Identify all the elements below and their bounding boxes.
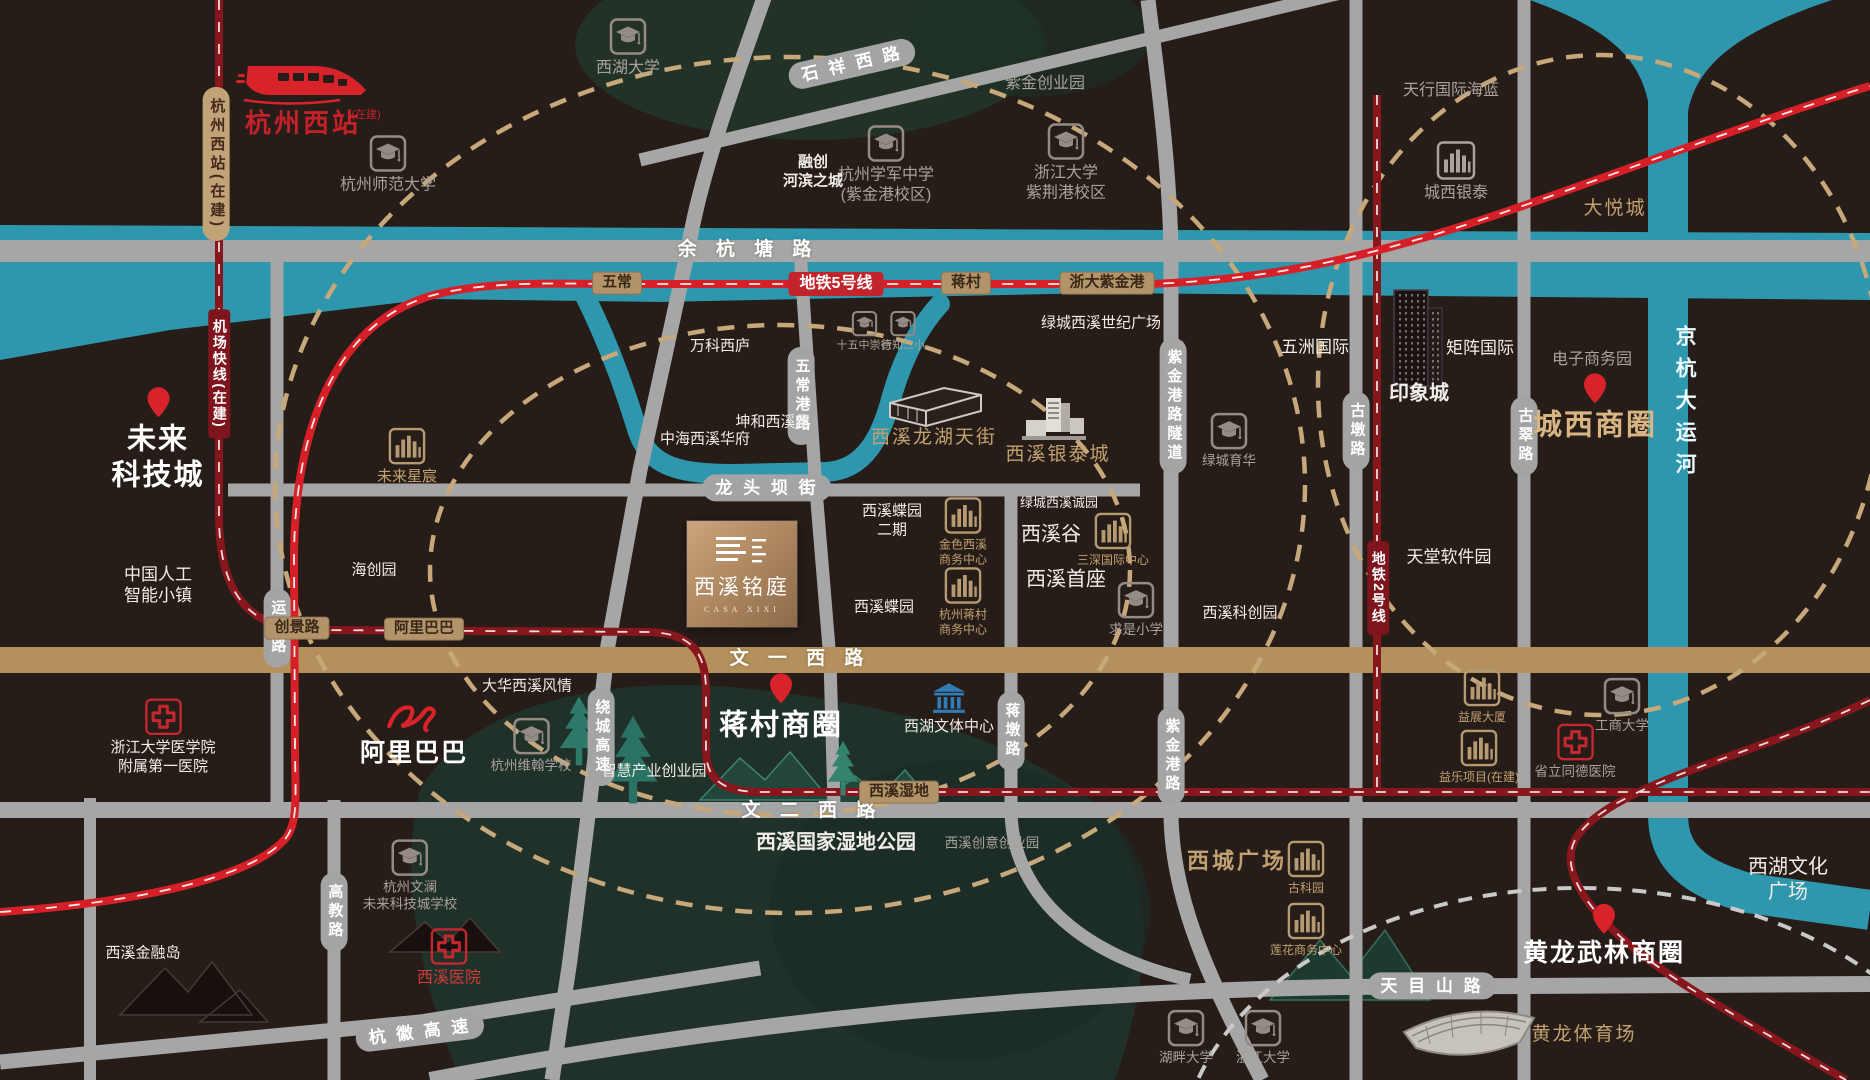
xixi-kechuang-park-label: 西溪科创园 bbox=[1202, 605, 1277, 624]
school-icon bbox=[369, 135, 407, 173]
xixi-shouzuo: 西溪首座 bbox=[1026, 568, 1106, 593]
sanshen-intl-center: 三深国际中心 bbox=[1077, 512, 1149, 568]
xihu-sports-center: 西湖文体中心 bbox=[904, 683, 994, 737]
impression-city-label: 印象城 bbox=[1389, 382, 1449, 407]
wuzhou-intl-label: 五洲国际 bbox=[1281, 336, 1349, 357]
road-yuhangtang: 余 杭 塘 路 bbox=[678, 238, 819, 262]
station-xixi-shidi-label: 西溪湿地 bbox=[859, 781, 939, 804]
xihu-sports-center-label: 西湖文体中心 bbox=[904, 718, 994, 737]
westlake-university-label: 西湖大学 bbox=[596, 59, 660, 79]
road-zijingang: 紫金港路 bbox=[1158, 707, 1185, 805]
road-tianmushan: 天 目 山 路 bbox=[1367, 972, 1496, 999]
lvcheng-xixi-century-plaza-label: 绿城西溪世纪广场 bbox=[1041, 315, 1161, 334]
weihan-school-label: 杭州维翰学校 bbox=[491, 758, 572, 775]
bld-icon bbox=[1463, 669, 1501, 707]
yizhan-tower-label: 益展大厦 bbox=[1458, 710, 1506, 725]
station-alibaba: 阿里巴巴 bbox=[384, 618, 464, 641]
paradise-software-park-label: 天堂软件园 bbox=[1407, 546, 1492, 567]
e-commerce-park-label: 电子商务园 bbox=[1552, 350, 1632, 370]
lvcheng-yuhua-school: 绿城育华 bbox=[1202, 412, 1256, 470]
school-icon bbox=[512, 717, 550, 755]
road-shixiang-xi-label: 石 祥 西 路 bbox=[786, 36, 918, 92]
station-chuangjinglu-label: 创景路 bbox=[264, 617, 329, 640]
xixi-finance-island-label: 西溪金融岛 bbox=[105, 945, 180, 964]
kunhe-xixili-label: 坤和西溪里 bbox=[735, 414, 810, 433]
golden-xixi-biz-center-label: 金色西溪 商务中心 bbox=[939, 538, 987, 568]
xixi-shouzuo-label: 西溪首座 bbox=[1026, 568, 1106, 593]
road-gudun: 古墩路 bbox=[1343, 392, 1370, 471]
hosp-icon bbox=[1556, 723, 1594, 761]
metro-line5-badge-label: 地铁5号线 bbox=[789, 272, 884, 296]
pin-icon bbox=[1592, 903, 1616, 935]
yizhan-tower: 益展大厦 bbox=[1458, 669, 1506, 725]
bld-icon bbox=[388, 427, 426, 465]
westlake-culture-plaza-label: 西湖文化广场 bbox=[1747, 855, 1829, 905]
xicheng-plaza: 西城广场 bbox=[1187, 847, 1287, 875]
future-star-chen: 未来星宸 bbox=[377, 427, 437, 487]
jiangcun-biz-center-label: 杭州蒋村 商务中心 bbox=[939, 608, 987, 638]
xixi-longfor-tianjie: 西溪龙湖天街 bbox=[871, 426, 997, 450]
tianxing-intl-hailan: 天行国际海蓝 bbox=[1403, 81, 1499, 101]
haichuang-park: 海创园 bbox=[351, 562, 396, 581]
road-wenyi-xi-label: 文 一 西 路 bbox=[730, 647, 871, 671]
station-zheda-zijingang: 浙大紫金港 bbox=[1059, 272, 1154, 295]
golden-xixi-biz-center: 金色西溪 商务中心 bbox=[939, 497, 987, 568]
wuzhou-intl: 五洲国际 bbox=[1281, 336, 1349, 357]
project-latin-name: CASA XIXI bbox=[704, 605, 780, 614]
jiangcun-biz-center: 杭州蒋村 商务中心 bbox=[939, 567, 987, 638]
zijin-innovation-park: 紫金创业园 bbox=[1005, 74, 1085, 94]
gongshang-university-label: 工商大学 bbox=[1595, 718, 1649, 735]
hangzhou-west-station-capsule: 杭州西站(在建) bbox=[203, 87, 230, 241]
road-gaojiao-label: 高教路 bbox=[321, 873, 348, 952]
school-icon bbox=[1244, 1009, 1282, 1047]
bld-icon bbox=[1460, 729, 1498, 767]
vanke-xilu-label: 万科西庐 bbox=[690, 338, 750, 357]
xixi-valley-label: 西溪谷 bbox=[1021, 523, 1081, 548]
project-logo-mark bbox=[710, 535, 774, 567]
zhejiang-univ-zijingang-label: 浙江大学 紫荆港校区 bbox=[1026, 164, 1106, 204]
xuejun-high-school-label: 杭州学军中学 (紫金港校区) bbox=[838, 166, 934, 206]
sunac-riverside-city-label: 融创 河滨之城 bbox=[783, 153, 843, 191]
road-zijingang-tunnel: 紫金港路隧道 bbox=[1160, 338, 1187, 474]
juzhen-intl-label: 矩阵国际 bbox=[1446, 337, 1514, 358]
tianxing-intl-hailan-label: 天行国际海蓝 bbox=[1403, 81, 1499, 101]
project-logo: 西溪铭庭 CASA XIXI bbox=[687, 521, 797, 627]
sunac-riverside-city: 融创 河滨之城 bbox=[783, 153, 843, 191]
hosp-icon bbox=[144, 698, 182, 736]
zijin-innovation-park-label: 紫金创业园 bbox=[1005, 74, 1085, 94]
metro-line5-badge: 地铁5号线 bbox=[789, 272, 884, 296]
future-sci-tech-city-label: 未来 科技城 bbox=[111, 421, 204, 494]
future-sci-tech-city: 未来 科技城 bbox=[111, 386, 204, 494]
zhonghai-xixi-huafu-label: 中海西溪华府 bbox=[660, 431, 750, 450]
school-icon bbox=[1117, 581, 1155, 619]
hangzhou-west-station-note: (在建) bbox=[351, 109, 380, 123]
road-shixiang-xi: 石 祥 西 路 bbox=[786, 36, 918, 92]
gongshang-university: 工商大学 bbox=[1595, 677, 1649, 735]
qiushi-primary-label: 求是小学 bbox=[1109, 622, 1163, 639]
bld-icon bbox=[944, 567, 982, 605]
zhejiang-university: 浙江大学 bbox=[1236, 1009, 1290, 1067]
smart-industry-park-label: 智慧产业创业园 bbox=[601, 763, 706, 782]
station-zheda-zijingang-label: 浙大紫金港 bbox=[1059, 272, 1154, 295]
road-gudun-label: 古墩路 bbox=[1343, 392, 1370, 471]
juzhen-intl: 矩阵国际 bbox=[1446, 337, 1514, 358]
qiushi-primary: 求是小学 bbox=[1109, 581, 1163, 639]
metro-line2-badge-label: 地铁2号线 bbox=[1367, 541, 1389, 635]
xicheng-plaza-label: 西城广场 bbox=[1187, 847, 1287, 875]
airport-express-badge: 机场快线(在建) bbox=[208, 309, 230, 438]
hupan-university: 湖畔大学 bbox=[1159, 1009, 1213, 1067]
road-hanghui-expwy: 杭 徽 高 速 bbox=[354, 1011, 486, 1054]
bld-icon bbox=[944, 497, 982, 535]
school-icon bbox=[1210, 412, 1248, 450]
yile-project: 益乐项目(在建) bbox=[1439, 729, 1519, 785]
station-jiangcun: 蒋村 bbox=[941, 272, 991, 295]
joy-city: 大悦城 bbox=[1583, 197, 1646, 221]
station-xixi-shidi: 西溪湿地 bbox=[859, 781, 939, 804]
station-chuangjinglu: 创景路 bbox=[264, 617, 329, 640]
xuejun-high-school: 杭州学军中学 (紫金港校区) bbox=[838, 125, 934, 206]
gukeyuan-label: 古科园 bbox=[1288, 881, 1324, 896]
huanglong-wulin-business-circle-label: 黄龙武林商圈 bbox=[1523, 938, 1685, 969]
road-zijingang-label: 紫金港路 bbox=[1158, 707, 1185, 805]
pin-icon bbox=[1583, 372, 1607, 404]
joy-city-label: 大悦城 bbox=[1583, 197, 1646, 221]
jiangcun-business-circle-label: 蒋村商圈 bbox=[719, 707, 843, 743]
zhonghai-xixi-huafu: 中海西溪华府 bbox=[660, 431, 750, 450]
chengxi-intime-label: 城西银泰 bbox=[1424, 184, 1488, 204]
xingzhi-primary: 行知二小 bbox=[881, 311, 925, 354]
pin-icon bbox=[769, 672, 793, 704]
lvcheng-xixi-chengyuan-label: 绿城西溪诚园 bbox=[1020, 495, 1098, 511]
dahua-xixi-fengqing-label: 大华西溪风情 bbox=[482, 678, 572, 697]
huanglong-stadium-label: 黄龙体育场 bbox=[1531, 1023, 1636, 1047]
jinghang-canal-label: 京杭大运河 bbox=[1671, 325, 1697, 485]
road-yuhangtang-label: 余 杭 塘 路 bbox=[678, 238, 819, 262]
lianhua-biz-center: 莲花商务中心 bbox=[1270, 902, 1342, 958]
road-wenyi-xi: 文 一 西 路 bbox=[730, 647, 871, 671]
zhejiang-univ-zijingang: 浙江大学 紫荆港校区 bbox=[1026, 123, 1106, 204]
huanglong-wulin-business-circle: 黄龙武林商圈 bbox=[1523, 903, 1685, 969]
alibaba-company-label: 阿里巴巴 bbox=[360, 738, 468, 769]
future-star-chen-label: 未来星宸 bbox=[377, 468, 437, 487]
chengxi-business-circle: 城西商圈 bbox=[1533, 372, 1657, 443]
xixi-kechuang-park: 西溪科创园 bbox=[1202, 605, 1277, 624]
wenlan-school: 杭州文澜 未来科技城学校 bbox=[363, 839, 458, 914]
road-gaojiao: 高教路 bbox=[321, 873, 348, 952]
station-wuchang-label: 五常 bbox=[592, 272, 642, 295]
china-ai-town-label: 中国人工 智能小镇 bbox=[124, 564, 192, 607]
bld-gray-icon bbox=[1436, 141, 1476, 181]
hupan-university-label: 湖畔大学 bbox=[1159, 1050, 1213, 1067]
jinghang-canal: 京杭大运河 bbox=[1671, 325, 1697, 485]
location-map: 西溪铭庭 CASA XIXI bbox=[0, 0, 1870, 1080]
school-icon bbox=[391, 839, 429, 877]
road-longtouba-label: 龙 头 坝 街 bbox=[702, 474, 831, 501]
zhejiang-university-label: 浙江大学 bbox=[1236, 1050, 1290, 1067]
road-longtouba: 龙 头 坝 街 bbox=[702, 474, 831, 501]
xixi-dieyuan-label: 西溪蝶园 bbox=[854, 599, 914, 618]
huanglong-stadium: 黄龙体育场 bbox=[1531, 1023, 1636, 1047]
gukeyuan: 古科园 bbox=[1287, 840, 1325, 896]
xixi-hospital: 西溪医院 bbox=[417, 928, 481, 989]
school-icon bbox=[867, 125, 905, 163]
lianhua-biz-center-label: 莲花商务中心 bbox=[1270, 943, 1342, 958]
road-zijingang-tunnel-label: 紫金港路隧道 bbox=[1160, 338, 1187, 474]
station-jiangcun-label: 蒋村 bbox=[941, 272, 991, 295]
project-name: 西溪铭庭 bbox=[694, 571, 790, 601]
station-wuchang: 五常 bbox=[592, 272, 642, 295]
road-jiangdun-label: 蒋墩路 bbox=[998, 692, 1025, 771]
xixi-finance-island: 西溪金融岛 bbox=[105, 945, 180, 964]
xixi-dieyuan-phase2-label: 西溪蝶园 二期 bbox=[862, 502, 922, 540]
pin-icon bbox=[146, 386, 170, 418]
school-icon bbox=[609, 18, 647, 56]
zheda-first-hospital: 浙江大学医学院 附属第一医院 bbox=[110, 698, 215, 777]
lvcheng-xixi-chengyuan: 绿城西溪诚园 bbox=[1020, 495, 1098, 511]
hangzhou-west-station-note-label: (在建) bbox=[351, 109, 380, 123]
hangzhou-west-station-capsule-label: 杭州西站(在建) bbox=[203, 87, 230, 241]
vanke-xilu: 万科西庐 bbox=[690, 338, 750, 357]
lvcheng-yuhua-school-label: 绿城育华 bbox=[1202, 453, 1256, 470]
ali-icon bbox=[385, 699, 443, 735]
zheda-first-hospital-label: 浙江大学医学院 附属第一医院 bbox=[110, 739, 215, 777]
tongde-hospital-label: 省立同德医院 bbox=[1535, 764, 1616, 781]
hangzhou-normal-university: 杭州师范大学 bbox=[340, 135, 436, 196]
school-sm-icon bbox=[890, 311, 916, 337]
xixi-creative-park: 西溪创意创业园 bbox=[945, 836, 1040, 853]
westlake-culture-plaza: 西湖文化广场 bbox=[1747, 855, 1829, 905]
station-alibaba-label: 阿里巴巴 bbox=[384, 618, 464, 641]
chengxi-business-circle-label: 城西商圈 bbox=[1533, 407, 1657, 443]
westlake-university: 西湖大学 bbox=[596, 18, 660, 79]
xixi-creative-park-label: 西溪创意创业园 bbox=[945, 836, 1040, 853]
school-icon bbox=[1603, 677, 1641, 715]
xixi-hospital-label: 西溪医院 bbox=[417, 969, 481, 989]
xingzhi-primary-label: 行知二小 bbox=[881, 340, 925, 354]
xixi-valley: 西溪谷 bbox=[1021, 523, 1081, 548]
xixi-intime-city-label: 西溪银泰城 bbox=[1005, 443, 1110, 467]
xixi-intime-city: 西溪银泰城 bbox=[1005, 443, 1110, 467]
smart-industry-park: 智慧产业创业园 bbox=[601, 763, 706, 782]
hosp-icon bbox=[430, 928, 468, 966]
e-commerce-park: 电子商务园 bbox=[1552, 350, 1632, 370]
sanshen-intl-center-label: 三深国际中心 bbox=[1077, 553, 1149, 568]
china-ai-town: 中国人工 智能小镇 bbox=[124, 564, 192, 607]
xixi-national-wetland-park-label: 西溪国家湿地公园 bbox=[756, 831, 916, 856]
airport-express-badge-label: 机场快线(在建) bbox=[208, 309, 230, 438]
map-labels-layer: 石 祥 西 路余 杭 塘 路龙 头 坝 街文 一 西 路文 二 西 路天 目 山… bbox=[0, 0, 1870, 1080]
yile-project-label: 益乐项目(在建) bbox=[1439, 770, 1519, 785]
alibaba-company: 阿里巴巴 bbox=[360, 699, 468, 769]
chengxi-intime: 城西银泰 bbox=[1424, 141, 1488, 204]
bld-icon bbox=[1287, 840, 1325, 878]
road-hanghui-expwy-label: 杭 徽 高 速 bbox=[354, 1011, 486, 1054]
school-sm-icon bbox=[851, 311, 877, 337]
weihan-school: 杭州维翰学校 bbox=[491, 717, 572, 775]
wenlan-school-label: 杭州文澜 未来科技城学校 bbox=[363, 880, 458, 914]
xixi-longfor-tianjie-label: 西溪龙湖天街 bbox=[871, 426, 997, 450]
dahua-xixi-fengqing: 大华西溪风情 bbox=[482, 678, 572, 697]
metro-line2-badge: 地铁2号线 bbox=[1367, 541, 1389, 635]
road-jiangdun: 蒋墩路 bbox=[998, 692, 1025, 771]
bld-icon bbox=[1094, 512, 1132, 550]
lvcheng-xixi-century-plaza: 绿城西溪世纪广场 bbox=[1041, 315, 1161, 334]
school-icon bbox=[1167, 1009, 1205, 1047]
civic-icon bbox=[931, 683, 967, 715]
haichuang-park-label: 海创园 bbox=[351, 562, 396, 581]
bld-icon bbox=[1287, 902, 1325, 940]
xixi-dieyuan: 西溪蝶园 bbox=[854, 599, 914, 618]
xixi-dieyuan-phase2: 西溪蝶园 二期 bbox=[862, 502, 922, 540]
xixi-national-wetland-park: 西溪国家湿地公园 bbox=[756, 831, 916, 856]
impression-city: 印象城 bbox=[1389, 382, 1449, 407]
paradise-software-park: 天堂软件园 bbox=[1407, 546, 1492, 567]
jiangcun-business-circle: 蒋村商圈 bbox=[719, 672, 843, 743]
road-tianmushan-label: 天 目 山 路 bbox=[1367, 972, 1496, 999]
kunhe-xixili: 坤和西溪里 bbox=[735, 414, 810, 433]
school-icon bbox=[1047, 123, 1085, 161]
hangzhou-normal-university-label: 杭州师范大学 bbox=[340, 176, 436, 196]
